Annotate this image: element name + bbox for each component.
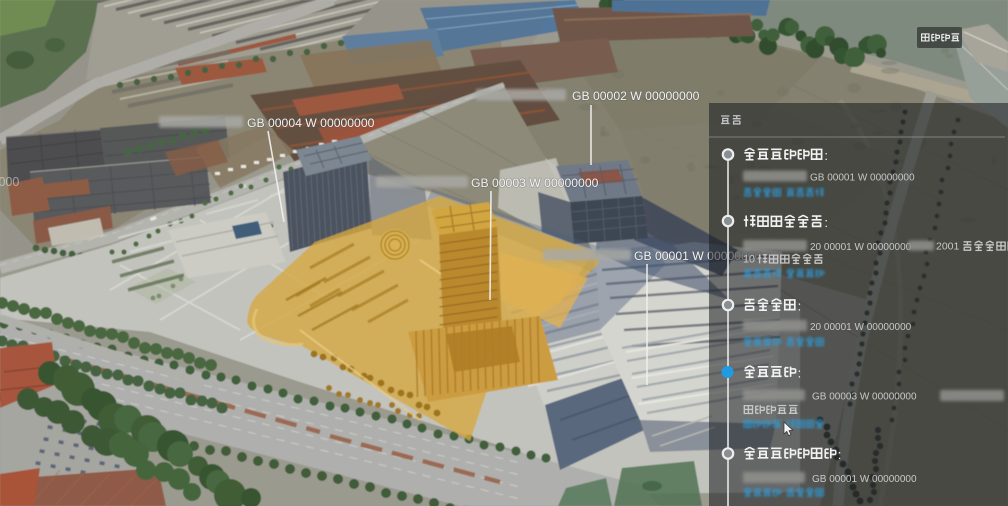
- svg-text:GB 00001 W 00000000: GB 00001 W 00000000: [812, 474, 917, 485]
- svg-text::: :: [824, 148, 828, 163]
- svg-text::: :: [798, 299, 802, 314]
- svg-text:GB 00002 W 00000000: GB 00002 W 00000000: [572, 89, 700, 103]
- svg-text::: :: [798, 366, 802, 381]
- svg-text:20 00001 W 00000000: 20 00001 W 00000000: [810, 322, 912, 333]
- svg-text:2001: 2001: [936, 241, 960, 253]
- svg-text:GB 00004 W 00000000: GB 00004 W 00000000: [247, 116, 375, 130]
- svg-text::: :: [838, 447, 842, 462]
- svg-text:GB 00001 W 00000000: GB 00001 W 00000000: [810, 173, 915, 184]
- svg-text:GB 00003 W 00000000: GB 00003 W 00000000: [812, 392, 917, 403]
- svg-text:20 00001 W 00000000: 20 00001 W 00000000: [810, 242, 912, 253]
- svg-text:GB 0000: GB 0000: [0, 175, 19, 189]
- svg-text::: :: [824, 215, 828, 230]
- svg-text:10: 10: [743, 254, 755, 266]
- svg-text:GB 00003 W 00000000: GB 00003 W 00000000: [471, 176, 599, 190]
